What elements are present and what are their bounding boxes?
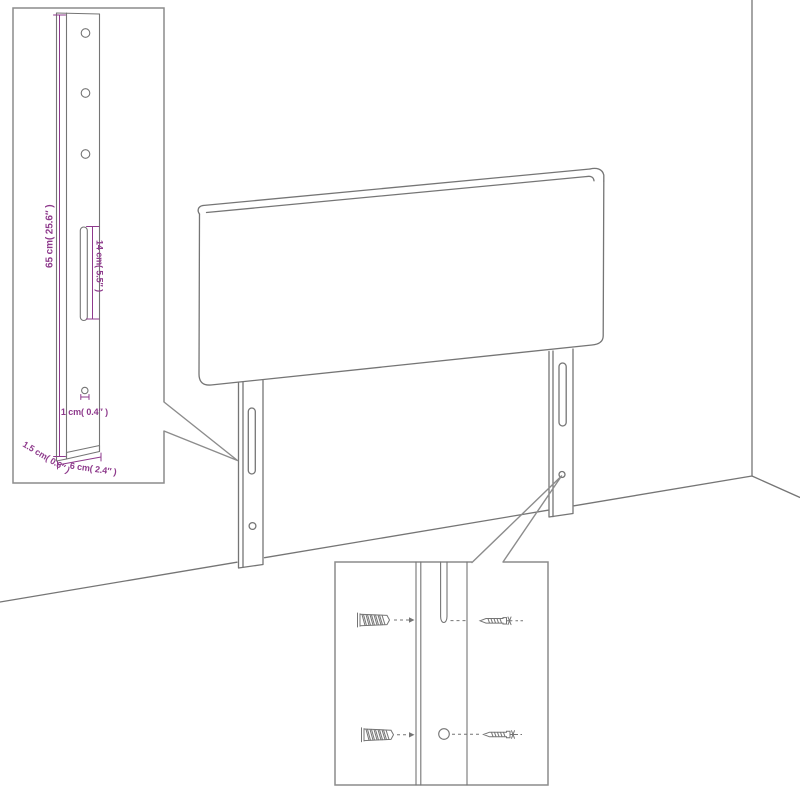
- bracket-hole: [81, 29, 90, 38]
- leg-strip-detail: [416, 562, 467, 785]
- headboard-leg-left: [239, 381, 264, 569]
- label-leg-width: 6 cm( 2.4″ ): [69, 461, 117, 477]
- callout-leg-dimensions: 65 cm( 25.6″ ) 14 cm( 5.5″ ) 1 cm( 0.4″ …: [13, 8, 164, 483]
- headboard-panel: [199, 181, 604, 385]
- product-diagram: 65 cm( 25.6″ ) 14 cm( 5.5″ ) 1 cm( 0.4″ …: [0, 0, 800, 800]
- leg-hole: [249, 523, 256, 530]
- label-leg-height: 65 cm( 25.6″ ): [45, 205, 56, 268]
- leg-slot: [559, 363, 566, 426]
- bracket-small-hole: [82, 387, 88, 393]
- leader-wedge-left: [164, 402, 238, 461]
- dimension-lines: [54, 15, 102, 469]
- leg-detail-drawing: [57, 13, 100, 461]
- wall-plug-icon: [358, 613, 390, 627]
- headboard-leg-right: [549, 349, 573, 517]
- slot-detail: [441, 562, 447, 623]
- arrowhead: [409, 617, 415, 622]
- label-leg-thickness: 1.5 cm( 0.6″ ): [21, 439, 72, 475]
- diagram-canvas: 65 cm( 25.6″ ) 14 cm( 5.5″ ) 1 cm( 0.4″ …: [0, 0, 800, 800]
- callout-box-border: [335, 562, 548, 785]
- floor-line-left: [0, 476, 752, 602]
- label-hole-diameter: 1 cm( 0.4″ ): [61, 407, 108, 417]
- bracket-hole: [81, 150, 90, 159]
- bracket-slot: [80, 227, 87, 321]
- hole-detail: [439, 729, 450, 740]
- leg-slot: [248, 408, 255, 474]
- dimension-line-1cm: [81, 395, 89, 400]
- room-lines: [0, 0, 800, 602]
- label-slot-length: 14 cm( 5.5″ ): [95, 240, 105, 292]
- fastener-row-bottom: [362, 728, 523, 742]
- arrowhead: [409, 732, 415, 737]
- wall-plug-icon: [362, 728, 394, 742]
- callout-leader-lines: [164, 402, 562, 563]
- callout-screw-detail: [335, 562, 548, 785]
- bracket-hole: [81, 89, 90, 98]
- floor-line-right: [752, 476, 800, 498]
- leader-wedge-right: [472, 476, 562, 563]
- screw-icon: [480, 617, 512, 625]
- headboard: [198, 168, 604, 568]
- screw-icon: [484, 731, 516, 739]
- headboard-top-edge: [198, 168, 604, 214]
